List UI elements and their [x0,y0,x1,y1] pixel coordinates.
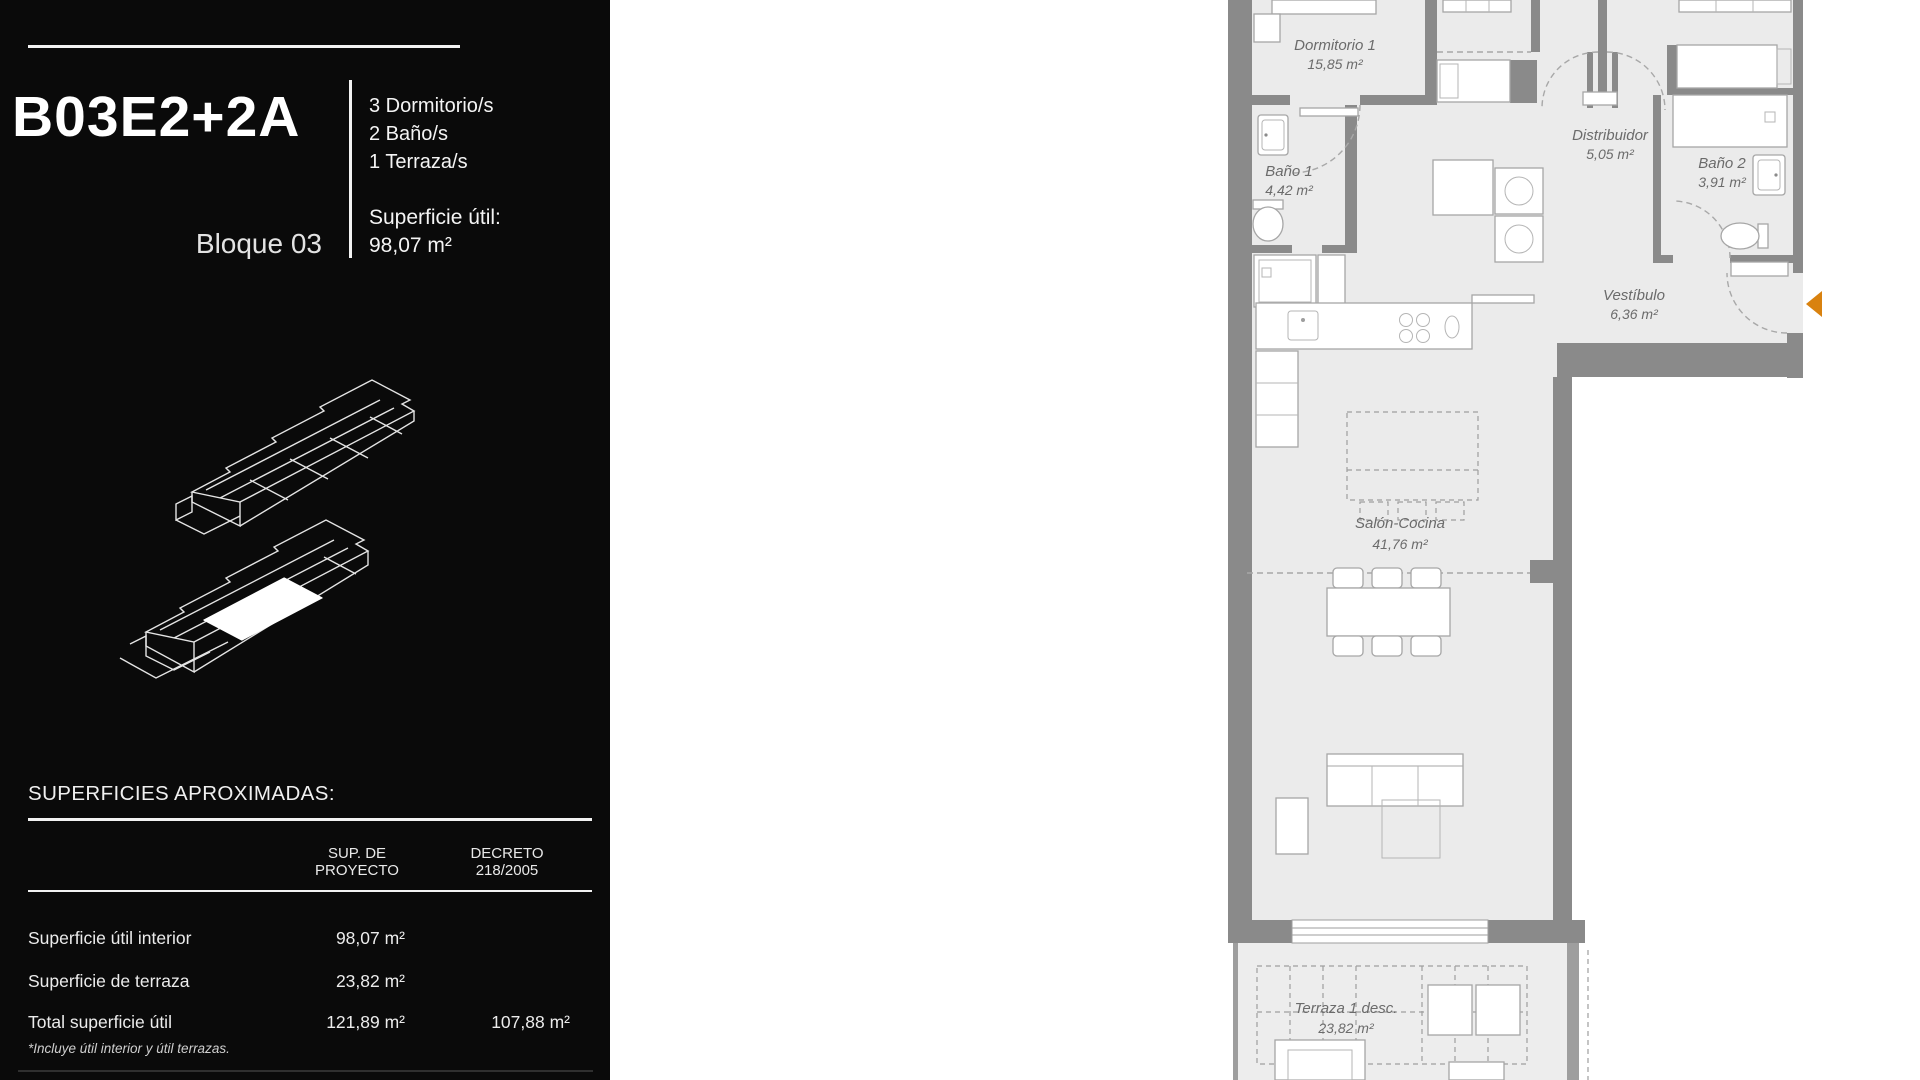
chair [1333,636,1363,656]
unit-features: 3 Dormitorio/s 2 Baño/s 1 Terraza/s [369,92,493,176]
room-area-salon-cocina: 41,76 m² [1372,536,1429,552]
entrance-arrow [1806,291,1822,317]
chair [1411,568,1441,588]
room-area-vestibulo: 6,36 m² [1610,306,1659,322]
dryer [1495,216,1543,262]
usable-area-label: Superficie útil: [369,206,501,230]
table-rule-header [28,890,592,892]
room-area-terraza: 23,82 m² [1317,1020,1375,1036]
building-isometric-top [176,380,414,534]
nightstand [1254,14,1280,42]
toilet [1253,207,1283,241]
sofa [1327,754,1463,806]
bed [1677,45,1777,88]
feature-bedrooms: 3 Dormitorio/s [369,92,493,120]
chair [1372,636,1402,656]
fridge-column [1256,351,1298,447]
room-area-distribuidor: 5,05 m² [1586,146,1635,162]
room-label-bano2: Baño 2 [1698,155,1746,172]
outdoor-bench [1449,1062,1504,1080]
shower [1673,95,1787,147]
room-label-terraza: Terraza 1 desc. [1295,1000,1398,1017]
closet [1443,0,1511,12]
shower [1254,255,1316,307]
room-label-salon-cocina: Salón-Cocina [1355,515,1445,532]
sliding-door [1472,295,1534,303]
unit-code: B03E2+2A [12,84,300,150]
bottom-faint-rule [18,1070,593,1072]
lounger [1476,985,1520,1035]
room-label-vestibulo: Vestíbulo [1603,287,1665,304]
floor-plan: Dormitorio 1 15,85 m² Baño 1 4,42 m² Dis… [1200,0,1920,1080]
room-area-bano2: 3,91 m² [1698,174,1747,190]
highlighted-unit-location [204,578,322,640]
room-area-bano1: 4,42 m² [1265,182,1314,198]
room-label-bano1: Baño 1 [1265,163,1313,180]
closet [1679,0,1791,12]
feature-bathrooms: 2 Baño/s [369,120,493,148]
cabinet [1433,160,1493,215]
toilet [1721,223,1759,249]
table-rule-top [28,818,592,821]
bed [1437,60,1510,102]
top-rule [28,45,460,48]
table-footnote: *Incluye útil interior y útil terrazas. [28,1041,230,1056]
room-label-distribuidor: Distribuidor [1572,127,1649,144]
room-area-dormitorio1: 15,85 m² [1307,56,1364,72]
terrace-slider [1292,920,1488,943]
feature-terraces: 1 Terraza/s [369,148,493,176]
dining-table [1327,588,1450,636]
chair [1411,636,1441,656]
surfaces-heading: SUPERFICIES APROXIMADAS: [28,782,335,806]
dining-set [1327,568,1450,656]
chair [1333,568,1363,588]
building-isometric-drawing [80,290,510,730]
column-header-project: SUP. DE PROYECTO [292,845,422,879]
entry-cabinet [1731,262,1788,276]
block-label: Bloque 03 [130,228,322,260]
vertical-divider [349,80,352,258]
usable-area-value: 98,07 m² [369,234,452,258]
room-label-dormitorio1: Dormitorio 1 [1294,37,1376,54]
column-header-decree: DECRETO 218/2005 [442,845,572,879]
sliding-door [1300,108,1358,116]
closet-shelf [1583,92,1617,105]
chair [1372,568,1402,588]
armchair [1276,798,1308,854]
info-sidebar: B03E2+2A 3 Dormitorio/s 2 Baño/s 1 Terra… [0,0,610,1080]
lounger [1428,985,1472,1035]
washer [1495,168,1543,214]
